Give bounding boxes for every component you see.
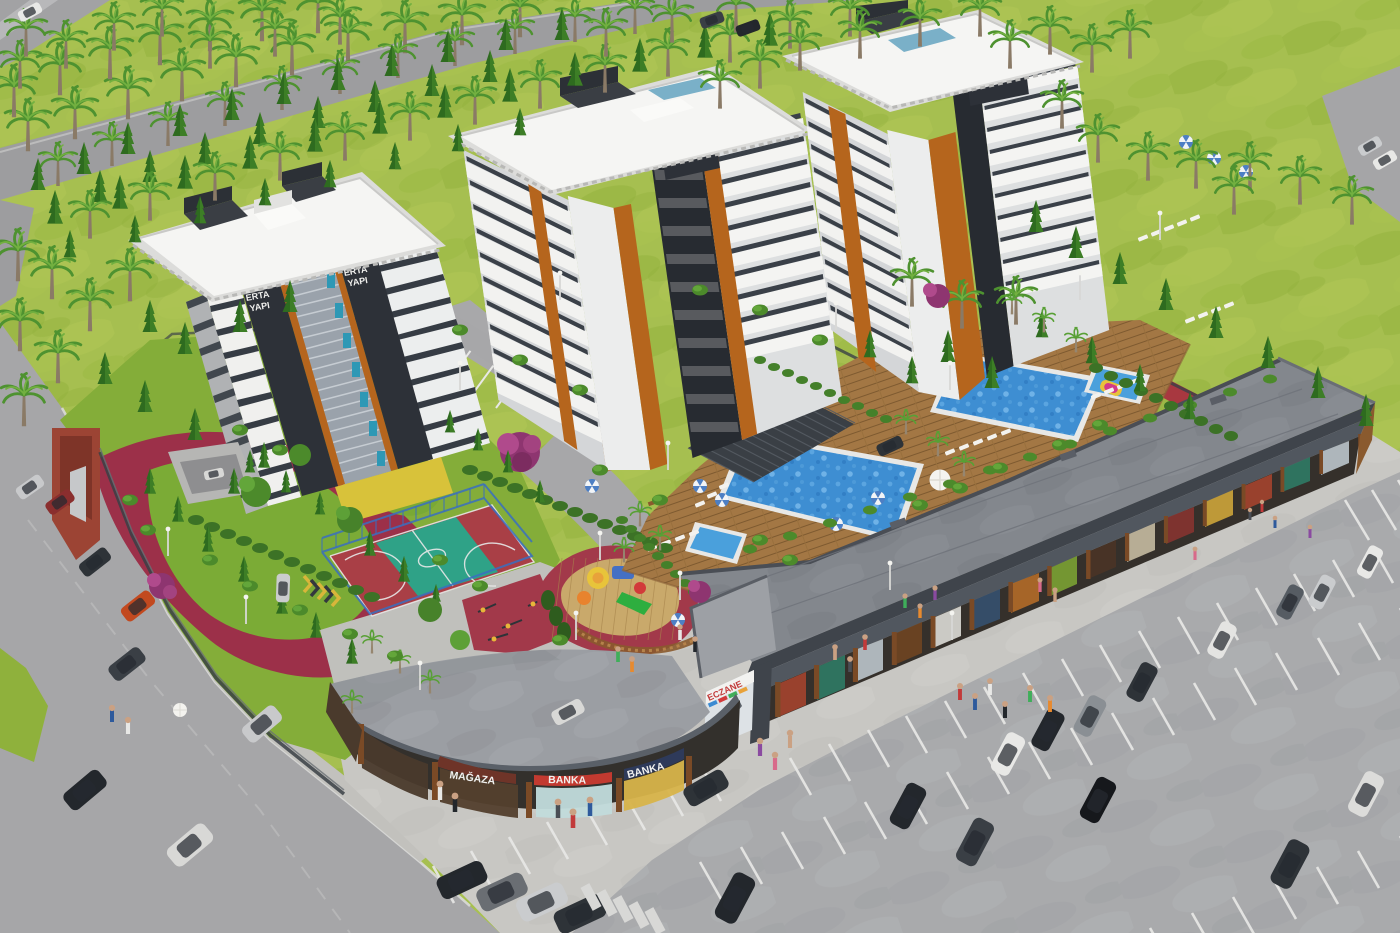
svg-text:BANKA: BANKA xyxy=(548,774,587,787)
